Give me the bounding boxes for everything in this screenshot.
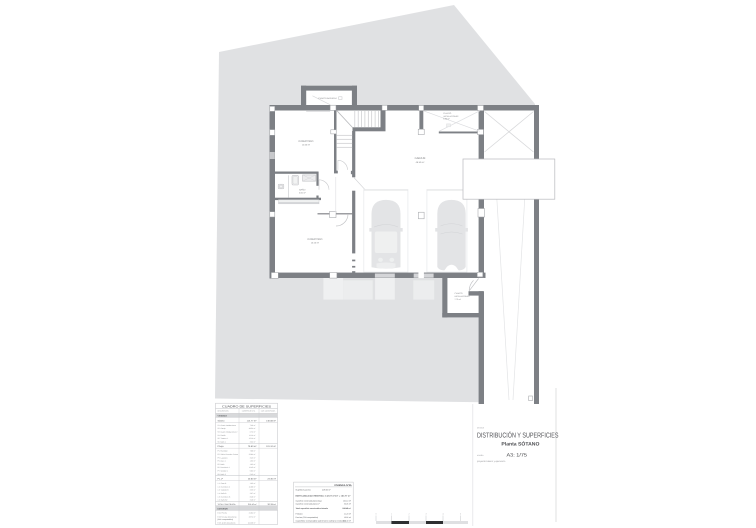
svg-text:5: 5: [460, 513, 462, 516]
svg-text:S4. Pasillo: S4. Pasillo: [218, 434, 226, 436]
svg-text:DORMITORIO: DORMITORIO: [308, 238, 323, 241]
svg-text:23.36 m²: 23.36 m²: [267, 478, 276, 481]
svg-text:48.50 m²: 48.50 m²: [249, 428, 256, 430]
svg-text:5.86 m²: 5.86 m²: [250, 470, 256, 472]
svg-text:79.80 m²: 79.80 m²: [248, 445, 257, 448]
svg-text:A3: 1/75: A3: 1/75: [507, 453, 528, 459]
svg-text:33.80 m²: 33.80 m²: [249, 454, 256, 456]
svg-text:10.92 m²: 10.92 m²: [344, 516, 351, 518]
svg-text:P5. Baño: P5. Baño: [218, 463, 225, 465]
svg-text:S3. Cuarto instalaciones 2: S3. Cuarto instalaciones 2: [218, 431, 238, 433]
svg-text:CUARTO BASURAS: CUARTO BASURAS: [318, 97, 337, 100]
svg-text:10.40 m²: 10.40 m²: [311, 241, 320, 244]
svg-text:1: 1: [391, 513, 393, 516]
svg-text:158.48 m²: 158.48 m²: [342, 507, 351, 509]
svg-text:10.88 m²: 10.88 m²: [249, 486, 256, 488]
svg-text:1.95 m²: 1.95 m²: [250, 483, 256, 485]
svg-text:21.20 m²: 21.20 m²: [344, 513, 351, 515]
svg-text:1.96 m²: 1.96 m²: [250, 460, 256, 462]
svg-text:7.70 m²: 7.70 m²: [455, 298, 462, 300]
svg-text:P.Sótano: P.Sótano: [296, 513, 303, 515]
svg-text:SUP. CONSTRUIDA: SUP. CONSTRUIDA: [261, 410, 276, 412]
svg-text:S5. Trastero 1: S5. Trastero 1: [218, 438, 229, 440]
svg-text:GARAJE: GARAJE: [415, 157, 426, 160]
svg-text:escala: escala: [477, 454, 484, 457]
svg-text:3: 3: [425, 513, 427, 516]
svg-text:5.05 m²: 5.05 m²: [250, 473, 256, 475]
svg-text:EXTERIOR: EXTERIOR: [218, 507, 228, 510]
svg-text:CUARTO: CUARTO: [443, 113, 451, 115]
svg-text:3.60 m²: 3.60 m²: [250, 441, 256, 443]
svg-text:1.93 m²: 1.93 m²: [250, 463, 256, 465]
svg-text:164.68 m²: 164.68 m²: [248, 522, 256, 524]
svg-text:25-013: 25-013: [477, 426, 484, 429]
svg-text:2: 2: [408, 513, 410, 516]
svg-text:S6. Baño 1: S6. Baño 1: [218, 441, 226, 443]
svg-text:Porches (50% computables): Porches (50% computables): [296, 516, 319, 518]
svg-text:Planta SÓTANO: Planta SÓTANO: [501, 440, 539, 447]
svg-text:EDIFICABILIDAD REMITIDA: 0.272: EDIFICABILIDAD REMITIDA: 0.2727 m²/m² = …: [296, 495, 351, 497]
svg-text:S2. Garaje: S2. Garaje: [218, 428, 226, 430]
svg-text:7.09 m²: 7.09 m²: [250, 424, 256, 426]
svg-text:DESCRIPCIÓN: DESCRIPCIÓN: [218, 410, 229, 412]
svg-text:23.74 m²: 23.74 m²: [249, 516, 256, 518]
svg-text:P8. Baño 2: P8. Baño 2: [218, 473, 226, 475]
svg-text:CUARTO: CUARTO: [455, 293, 463, 295]
svg-text:215.40 m²: 215.40 m²: [248, 504, 257, 506]
svg-text:3.43 m²: 3.43 m²: [250, 457, 256, 459]
svg-text:P.baja: P.baja: [218, 445, 224, 448]
svg-text:140.88 m²: 140.88 m²: [266, 419, 276, 422]
svg-text:Sótano: Sótano: [218, 419, 225, 422]
svg-text:E.03 Jardín descubierto: E.03 Jardín descubierto: [218, 522, 236, 524]
svg-text:1.2. Dormitorio 2: 1.2. Dormitorio 2: [218, 486, 231, 488]
svg-text:DISTRIBUCIÓN Y SUPERFICIES: DISTRIBUCIÓN Y SUPERFICIES: [477, 431, 559, 440]
svg-text:1.3. Vestidor B: 1.3. Vestidor B: [218, 489, 229, 491]
svg-text:48.50 m²: 48.50 m²: [416, 161, 425, 164]
svg-text:CUADRO DE SUPERFICIES: CUADRO DE SUPERFICIES: [222, 405, 271, 409]
svg-text:Total superficie construida vi: Total superficie construida vivienda: [296, 507, 329, 509]
svg-text:3.97 m²: 3.97 m²: [250, 493, 256, 495]
svg-text:INSTALACIONES: INSTALACIONES: [443, 115, 458, 117]
svg-text:1.6. Baño B2: 1.6. Baño B2: [218, 499, 228, 501]
svg-text:P1. Recibidor: P1. Recibidor: [218, 450, 229, 452]
svg-text:7.88 m²: 7.88 m²: [250, 450, 256, 452]
svg-text:Superficie construida planta b: Superficie construida planta baja: [296, 500, 322, 502]
svg-text:DORMITORIO: DORMITORIO: [299, 140, 314, 143]
svg-text:SUPERFICIE ÚTIL: SUPERFICIE ÚTIL: [242, 410, 256, 412]
svg-text:PL.1ª: PL.1ª: [218, 478, 224, 481]
svg-text:20.80 m²: 20.80 m²: [248, 478, 257, 481]
svg-text:BAÑO: BAÑO: [299, 188, 306, 191]
svg-text:56.35 m²: 56.35 m²: [344, 503, 351, 505]
svg-text:P2. Salón Comedor Cocina: P2. Salón Comedor Cocina: [218, 454, 239, 456]
svg-text:P6. Dormitorio 1: P6. Dormitorio 1: [218, 467, 230, 469]
svg-text:1.1. Paso B: 1.1. Paso B: [218, 483, 227, 485]
svg-text:Superficie computable patrimon: Superficie computable patrimonio (sótano…: [296, 520, 346, 522]
svg-text:P7. Vestidor 1: P7. Vestidor 1: [218, 470, 229, 472]
svg-text:E.01 Porche: E.01 Porche: [218, 512, 227, 514]
svg-text:INSTALACIONES: INSTALACIONES: [455, 296, 470, 298]
svg-text:VIVIENDA Nº2b: VIVIENDA Nº2b: [334, 484, 351, 487]
svg-text:21.84 m²: 21.84 m²: [249, 512, 256, 514]
svg-text:11.45 m²: 11.45 m²: [249, 467, 256, 469]
svg-text:Superficie construida planta 1: Superficie construida planta 1ª: [296, 503, 321, 505]
svg-text:4: 4: [442, 513, 444, 516]
svg-text:101.10 m²: 101.10 m²: [266, 445, 276, 448]
svg-text:S1. Cuarto instalaciones: S1. Cuarto instalaciones: [218, 424, 237, 426]
svg-text:0: 0: [375, 513, 377, 516]
svg-text:114.77 m²: 114.77 m²: [247, 419, 257, 422]
svg-text:12.10 m²: 12.10 m²: [249, 438, 256, 440]
svg-text:310.40 m²: 310.40 m²: [343, 520, 351, 522]
svg-text:E.02 Terraza descubierta: E.02 Terraza descubierta: [218, 516, 237, 518]
svg-text:P4. Aseo 1: P4. Aseo 1: [218, 460, 226, 462]
svg-text:3.35 m²: 3.35 m²: [250, 489, 256, 491]
svg-text:proyecto básico y ejecución: proyecto básico y ejecución: [477, 460, 505, 463]
svg-text:TOTAL CONSTRUIDA: TOTAL CONSTRUIDA: [218, 504, 236, 506]
svg-text:VIVIENDA: VIVIENDA: [218, 414, 228, 417]
svg-text:5.90 m²: 5.90 m²: [443, 118, 450, 120]
svg-text:12.00 m²: 12.00 m²: [302, 143, 311, 146]
svg-text:419.00 m²: 419.00 m²: [322, 489, 331, 491]
svg-text:102.13 m²: 102.13 m²: [343, 500, 351, 502]
svg-text:3.48 m²: 3.48 m²: [250, 499, 256, 501]
svg-text:(50% computables): (50% computables): [218, 518, 233, 520]
svg-text:6.70 m²: 6.70 m²: [250, 431, 256, 433]
svg-text:3.60 m²: 3.60 m²: [299, 192, 306, 195]
svg-text:1.5. Dormitorio B: 1.5. Dormitorio B: [218, 496, 231, 498]
svg-text:307.68 m²: 307.68 m²: [267, 504, 276, 506]
svg-text:1.4. Baño B: 1.4. Baño B: [218, 493, 227, 495]
svg-text:Superficie parcela: Superficie parcela: [296, 489, 312, 491]
svg-text:P3. Lavadero: P3. Lavadero: [218, 457, 228, 459]
svg-text:11.10 m²: 11.10 m²: [249, 434, 256, 436]
svg-text:8.48 m²: 8.48 m²: [250, 496, 256, 498]
